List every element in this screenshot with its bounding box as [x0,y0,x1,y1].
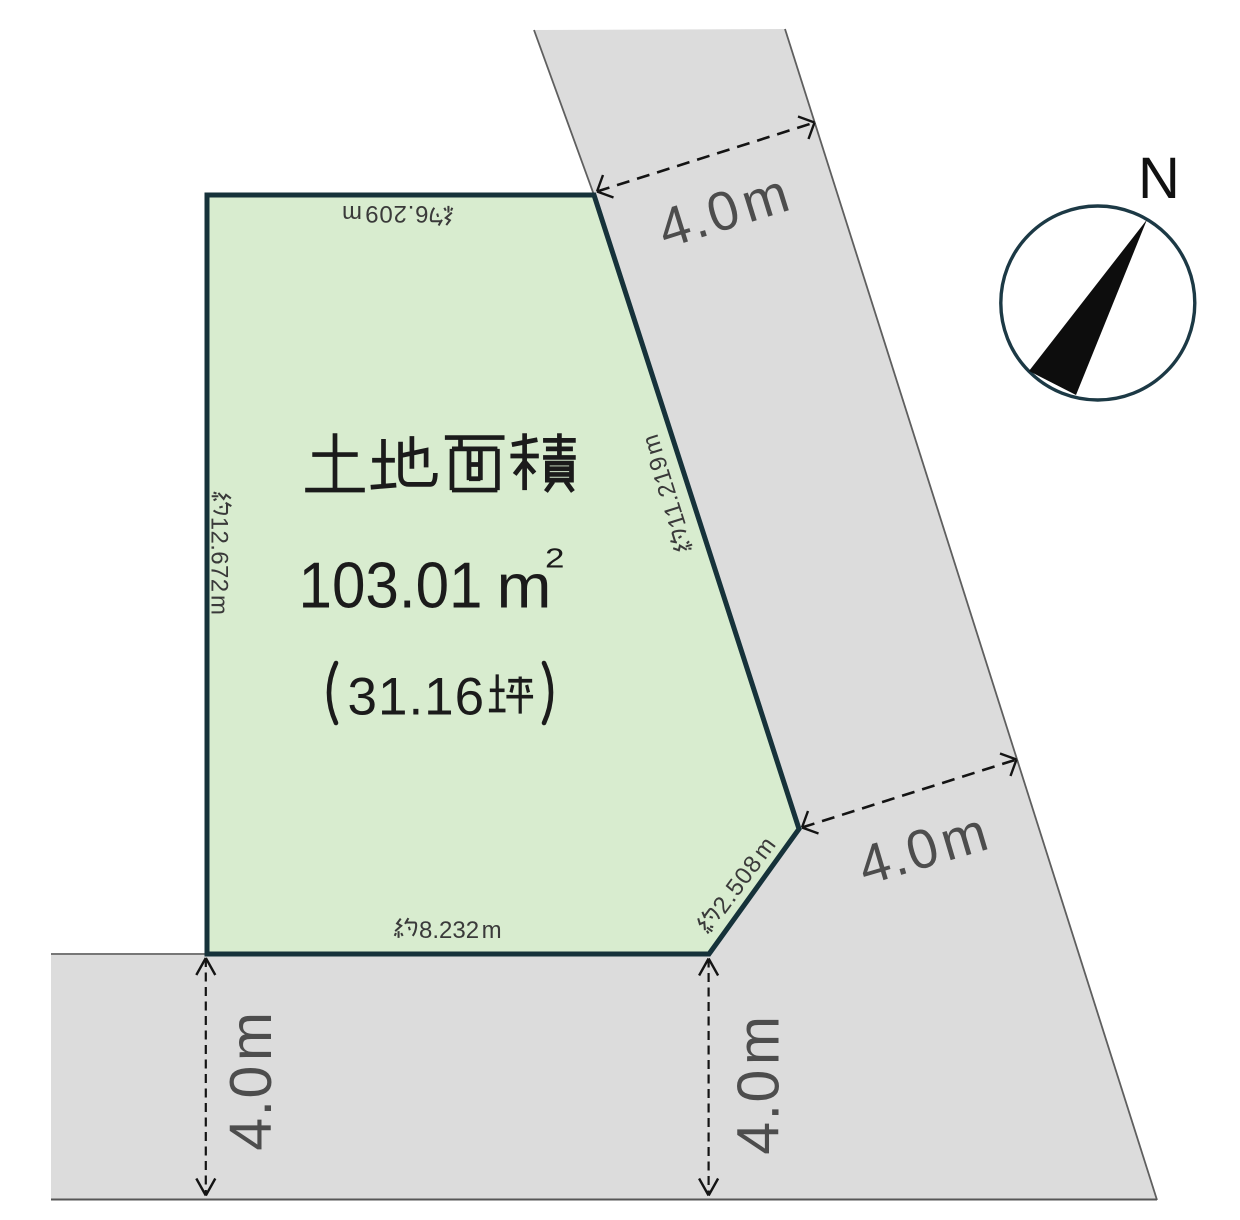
svg-text:m: m [497,552,552,621]
svg-text:8.232m: 8.232m [419,917,502,944]
svg-text:4.0m: 4.0m [218,1011,284,1151]
svg-text:2: 2 [545,542,564,574]
svg-text:6.209m: 6.209m [341,200,428,227]
svg-text:103.01: 103.01 [299,549,483,621]
svg-text:31.16: 31.16 [348,668,486,727]
svg-text:12.672m: 12.672m [206,517,233,616]
svg-text:N: N [1138,146,1180,211]
svg-text:4.0m: 4.0m [726,1015,792,1155]
